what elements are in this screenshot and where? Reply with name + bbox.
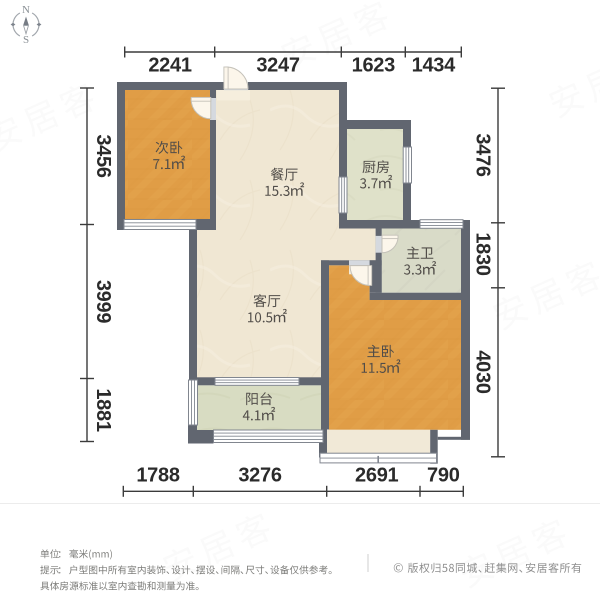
svg-text:1623: 1623 (352, 55, 395, 77)
svg-text:790: 790 (427, 464, 460, 486)
svg-text:3476: 3476 (472, 133, 494, 176)
svg-text:3247: 3247 (256, 55, 299, 77)
svg-text:3276: 3276 (238, 464, 281, 486)
svg-text:1830: 1830 (472, 232, 494, 275)
svg-text:2241: 2241 (148, 55, 191, 77)
svg-text:1788: 1788 (136, 464, 179, 486)
svg-text:4030: 4030 (472, 350, 494, 393)
svg-text:N: N (22, 4, 30, 16)
svg-text:1881: 1881 (92, 388, 114, 431)
svg-text:3999: 3999 (92, 280, 114, 323)
svg-text:1434: 1434 (412, 55, 456, 77)
svg-text:S: S (23, 34, 29, 46)
svg-text:2691: 2691 (355, 464, 398, 486)
svg-text:3456: 3456 (92, 134, 114, 177)
